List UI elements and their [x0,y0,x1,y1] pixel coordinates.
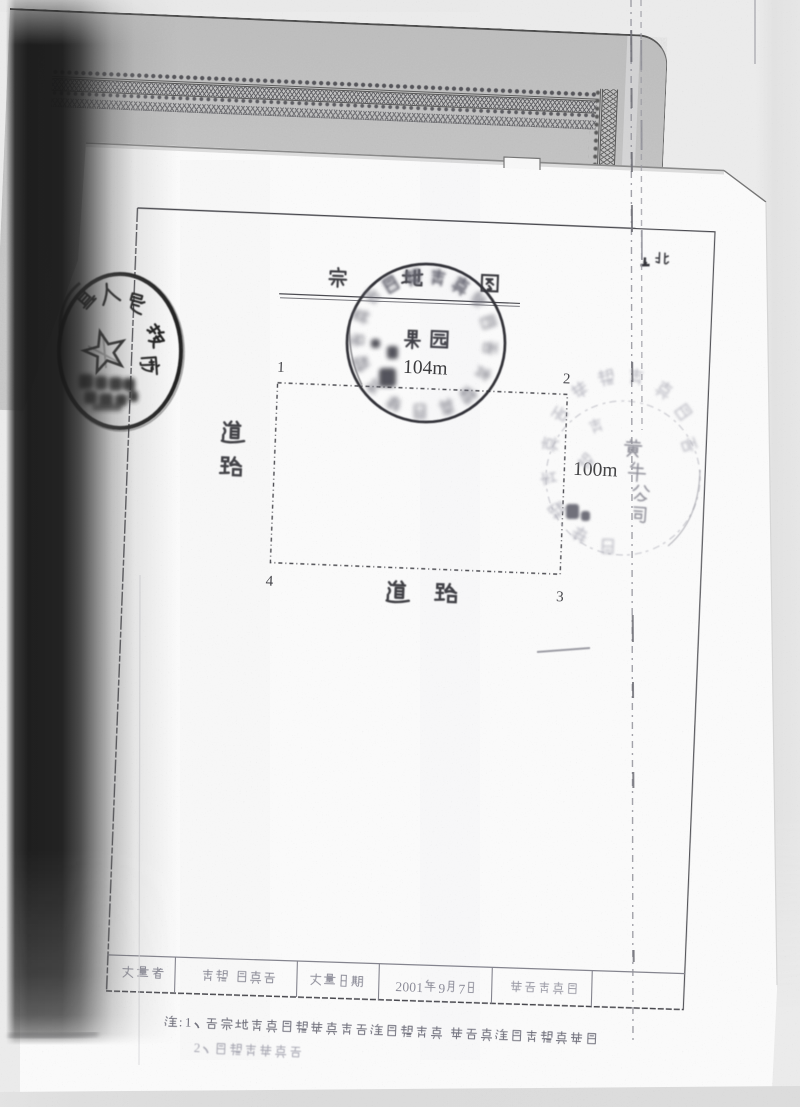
svg-text:3: 3 [556,589,564,605]
svg-text:2: 2 [563,371,571,387]
svg-text:1: 1 [277,360,285,376]
